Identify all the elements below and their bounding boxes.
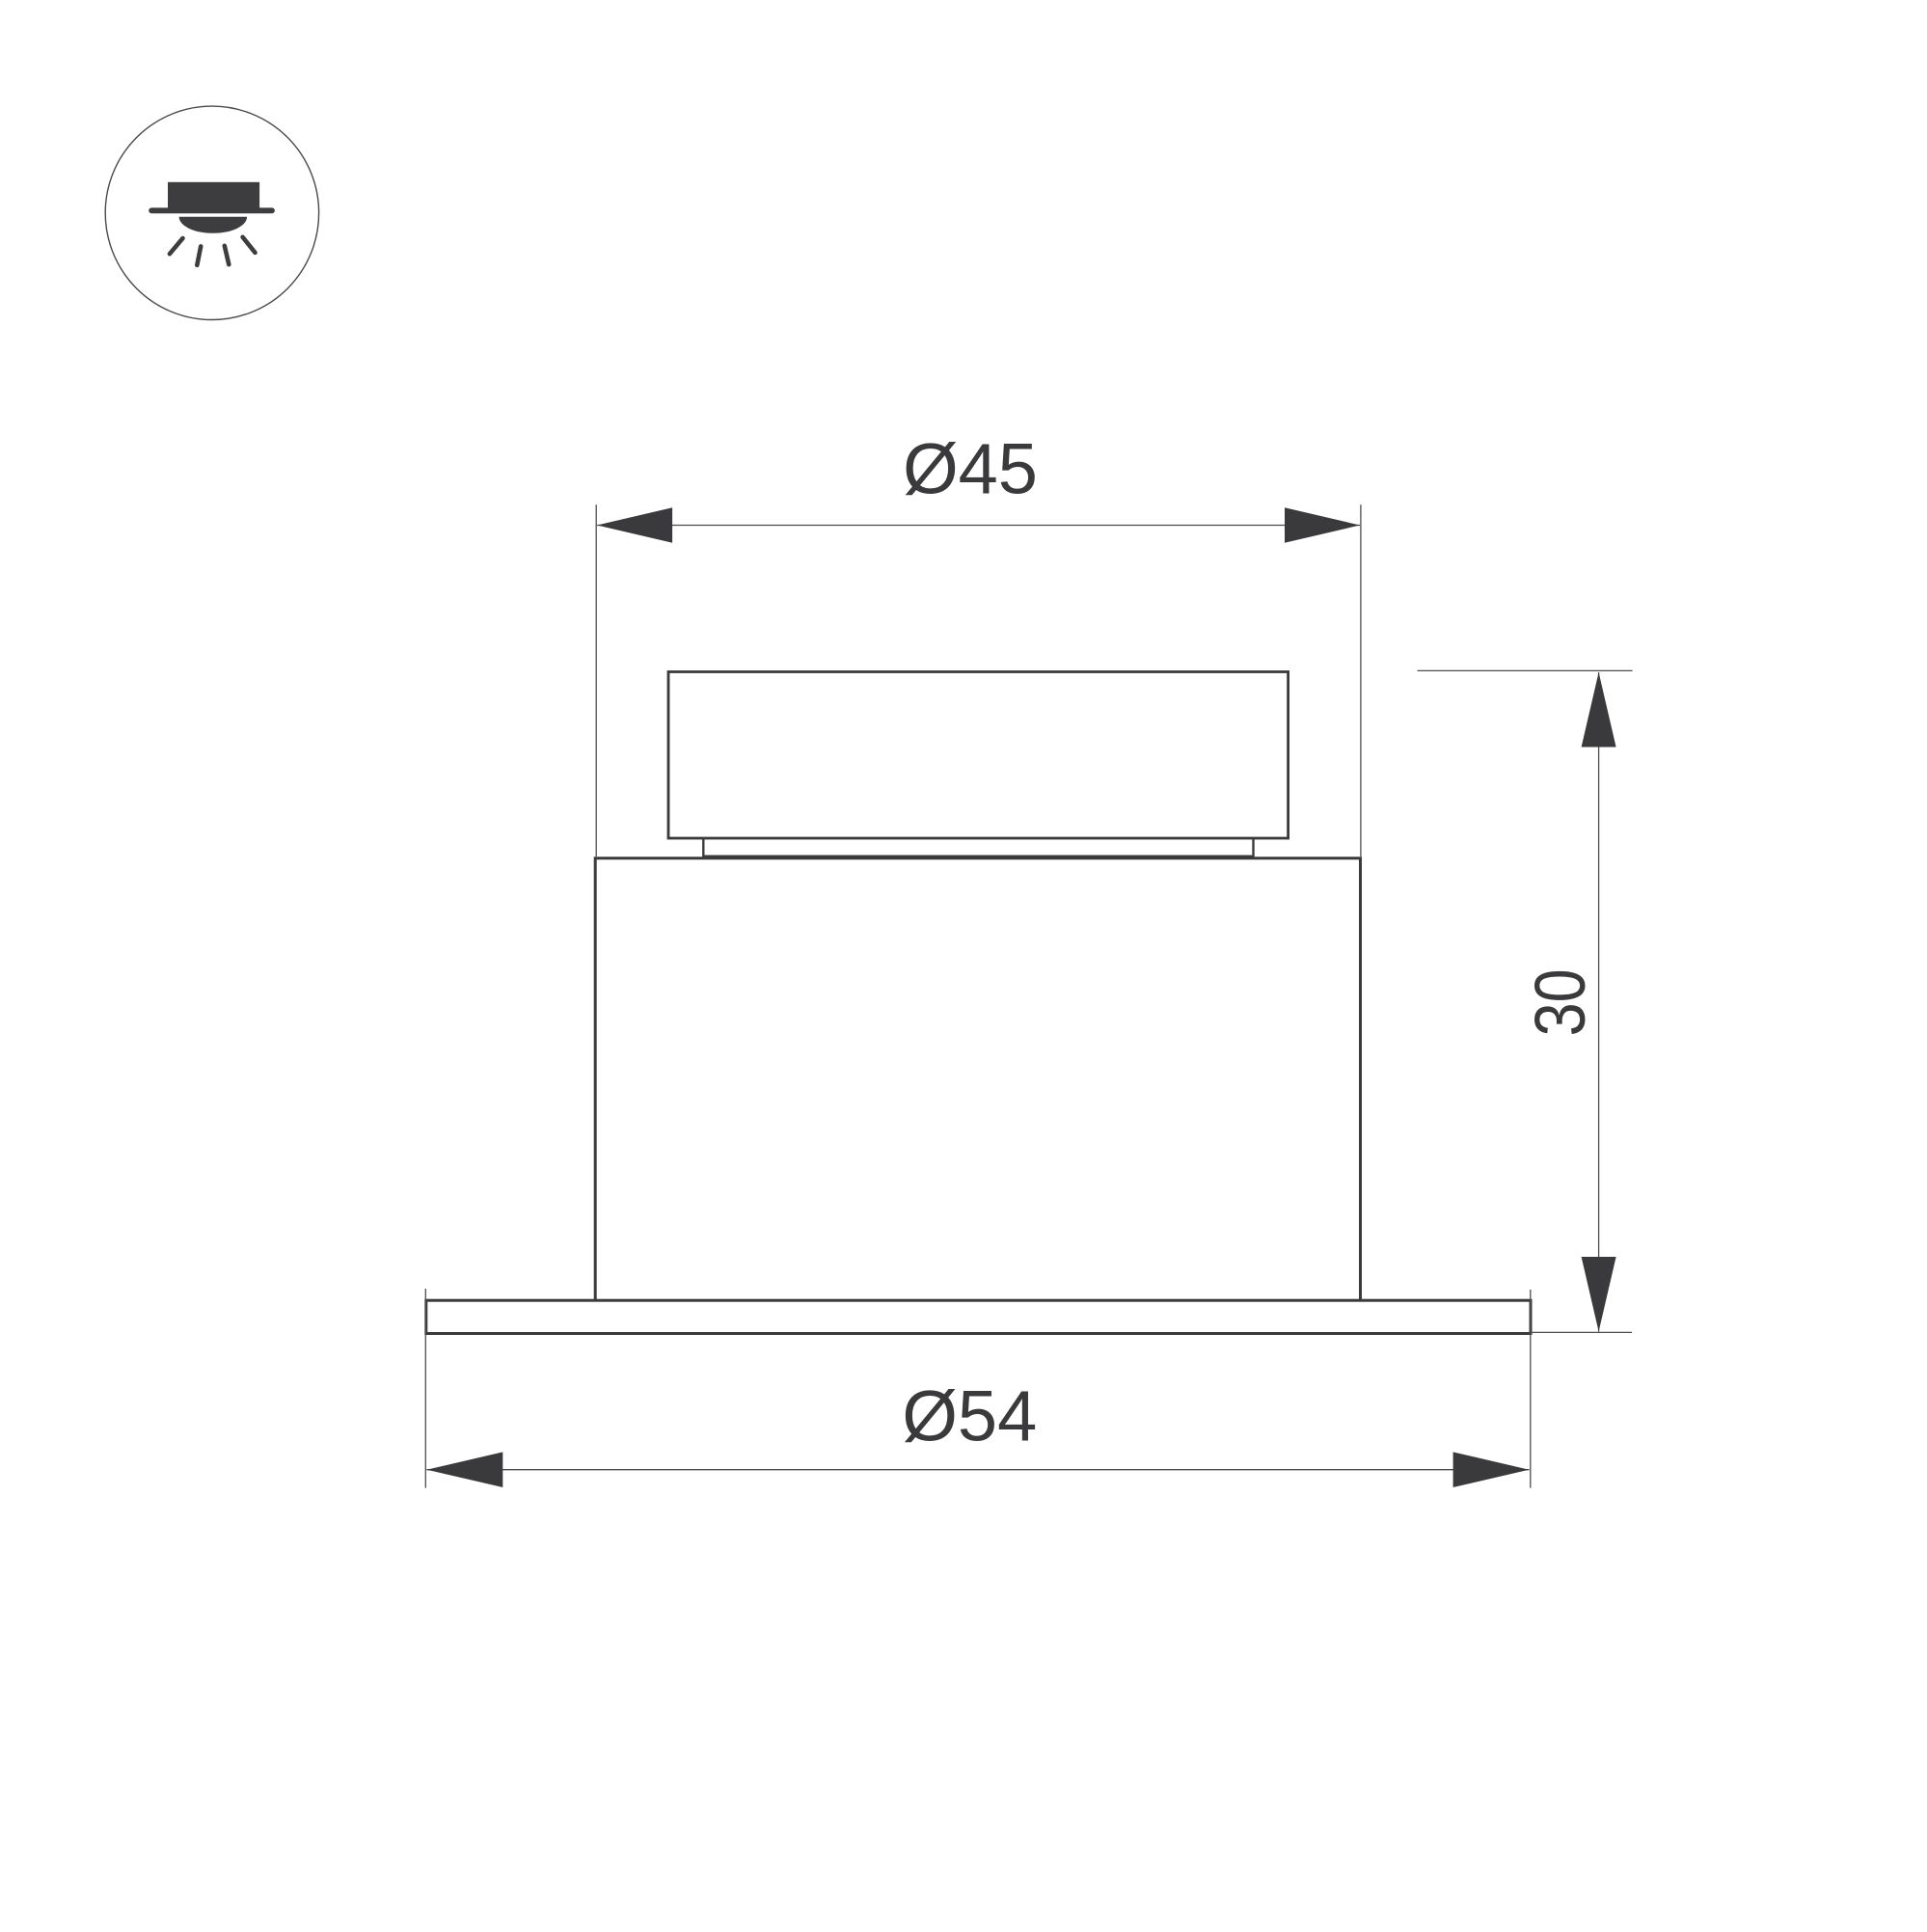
svg-text:Ø45: Ø45	[903, 429, 1038, 509]
svg-text:Ø54: Ø54	[902, 1376, 1037, 1456]
svg-text:30: 30	[1520, 968, 1600, 1036]
